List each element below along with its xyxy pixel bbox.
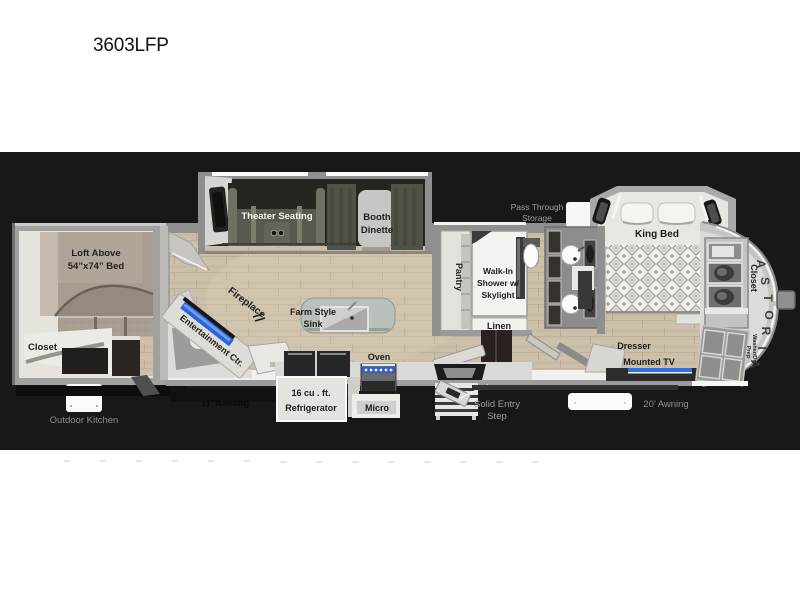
svg-text:Booth: Booth <box>363 212 391 223</box>
svg-text:16 cu . ft.: 16 cu . ft. <box>291 388 330 398</box>
svg-text:Oven: Oven <box>368 352 391 362</box>
svg-text:Refrigerator: Refrigerator <box>285 403 337 413</box>
svg-text:Closet: Closet <box>749 264 759 292</box>
svg-text:54”x74” Bed: 54”x74” Bed <box>68 261 125 272</box>
svg-text:Micro: Micro <box>365 403 390 413</box>
svg-text:T: T <box>761 294 775 302</box>
svg-text:R: R <box>759 327 773 336</box>
svg-text:Farm Style: Farm Style <box>290 307 336 317</box>
svg-text:Mounted TV: Mounted TV <box>623 357 675 367</box>
svg-text:O: O <box>762 310 776 319</box>
svg-text:Step: Step <box>487 411 507 422</box>
svg-text:Prep: Prep <box>745 346 751 359</box>
svg-text:11’ Awning: 11’ Awning <box>201 398 250 409</box>
svg-text:Storage: Storage <box>522 213 552 223</box>
svg-text:3603LFP: 3603LFP <box>93 35 169 56</box>
svg-text:King Bed: King Bed <box>635 229 679 240</box>
svg-text:Walk-In: Walk-In <box>483 266 513 276</box>
svg-text:Outdoor Kitchen: Outdoor Kitchen <box>50 415 119 426</box>
svg-text:S: S <box>758 277 772 285</box>
svg-text:Theater Seating: Theater Seating <box>241 211 312 222</box>
svg-text:Sink: Sink <box>303 319 323 329</box>
svg-text:Skylight: Skylight <box>481 290 514 300</box>
svg-text:Pass Through: Pass Through <box>511 202 564 212</box>
svg-text:Solid Entry: Solid Entry <box>474 399 520 410</box>
svg-text:Dresser: Dresser <box>617 341 651 351</box>
svg-text:Pantry: Pantry <box>454 263 464 291</box>
svg-text:Shower w/: Shower w/ <box>477 278 520 288</box>
svg-text:20’ Awning: 20’ Awning <box>643 399 688 410</box>
svg-text:Closet: Closet <box>28 342 58 353</box>
svg-text:Loft Above: Loft Above <box>71 248 120 259</box>
svg-text:Dinette: Dinette <box>361 225 393 236</box>
svg-text:Linen: Linen <box>487 321 511 331</box>
